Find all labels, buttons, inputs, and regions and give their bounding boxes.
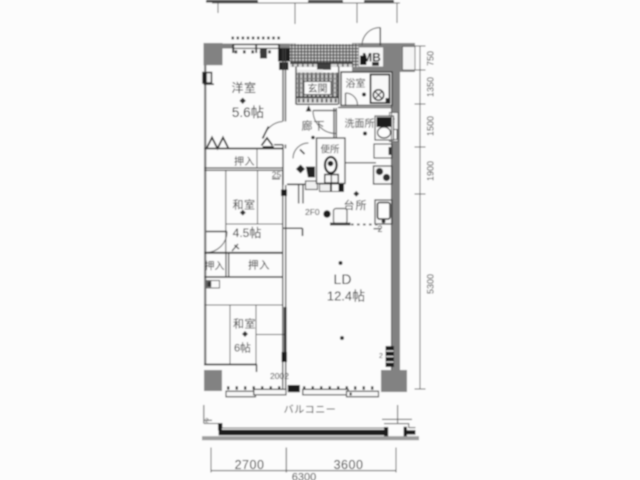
svg-text:バルコニー: バルコニー xyxy=(284,404,337,416)
svg-text:1350: 1350 xyxy=(426,77,436,97)
svg-text:廊下: 廊下 xyxy=(302,119,326,133)
svg-text:4.5帖: 4.5帖 xyxy=(233,225,262,240)
svg-text:12.4帖: 12.4帖 xyxy=(327,289,365,304)
svg-text:25: 25 xyxy=(272,170,282,180)
svg-text:2: 2 xyxy=(205,418,209,425)
svg-text:2: 2 xyxy=(379,353,383,360)
svg-text:6帖: 6帖 xyxy=(234,342,251,355)
svg-text:便所: 便所 xyxy=(320,144,340,156)
svg-text:和室: 和室 xyxy=(233,198,256,212)
svg-text:1500: 1500 xyxy=(426,116,436,136)
svg-text:押入: 押入 xyxy=(248,259,270,272)
svg-text:押入: 押入 xyxy=(234,155,255,168)
svg-text:浴室: 浴室 xyxy=(346,77,366,90)
svg-text:2002: 2002 xyxy=(270,371,289,381)
svg-text:2F0: 2F0 xyxy=(305,207,320,217)
svg-text:洗面所: 洗面所 xyxy=(345,118,375,130)
svg-text:750: 750 xyxy=(426,51,436,66)
svg-text:LD: LD xyxy=(334,271,352,287)
svg-text:玄関: 玄関 xyxy=(308,82,328,95)
svg-text:3600: 3600 xyxy=(334,458,364,472)
svg-text:5300: 5300 xyxy=(426,274,436,294)
svg-text:1900: 1900 xyxy=(426,161,436,181)
svg-text:5.6帖: 5.6帖 xyxy=(232,105,264,120)
svg-text:押入: 押入 xyxy=(205,260,225,273)
svg-text:和室: 和室 xyxy=(233,317,256,331)
svg-text:2700: 2700 xyxy=(235,458,265,472)
svg-text:洋室: 洋室 xyxy=(231,80,256,95)
svg-text:5: 5 xyxy=(325,212,329,219)
svg-text:6300: 6300 xyxy=(292,472,316,480)
